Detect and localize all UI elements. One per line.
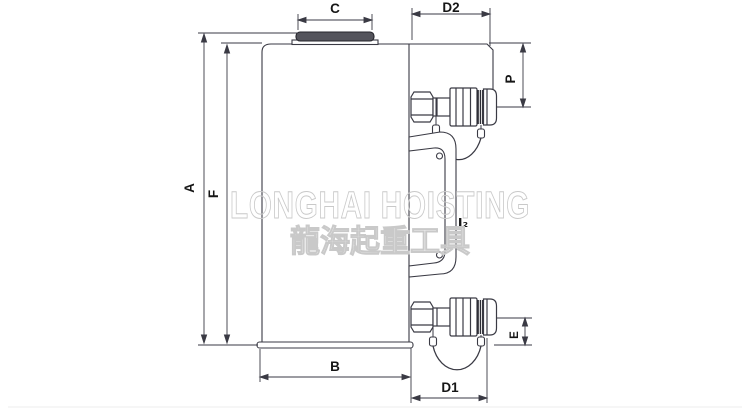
dim-C (298, 14, 372, 30)
dim-label-B: B (330, 359, 340, 374)
saddle (292, 32, 378, 45)
watermark-brand-chinese: 龍海起重工具 (290, 224, 470, 260)
bottom-lanyard-link-right (478, 337, 485, 346)
handle-curl-top (437, 153, 443, 159)
dim-label-F: F (206, 190, 221, 198)
dim-label-D2: D2 (442, 0, 459, 15)
base-plate (257, 342, 413, 348)
port-manifold (409, 44, 493, 93)
technical-drawing-canvas: C D2 A F B D1 P E I₂ LONGHAI HOISTING 龍海… (0, 0, 750, 414)
top-lanyard-link-right (478, 129, 485, 138)
watermark-brand-english: LONGHAI HOISTING (230, 185, 530, 227)
dim-label-E: E (509, 331, 521, 339)
dim-B (260, 348, 411, 403)
dim-label-D1: D1 (441, 380, 459, 395)
bottom-coupler (411, 298, 497, 370)
bottom-lanyard-link-left (430, 337, 437, 346)
bottom-lanyard-cord (433, 346, 481, 370)
drawing-page: C D2 A F B D1 P E I₂ LONGHAI HOISTING 龍海… (0, 0, 750, 414)
dim-label-A: A (182, 183, 197, 193)
dim-label-P: P (503, 74, 518, 83)
dim-label-C: C (330, 1, 340, 16)
